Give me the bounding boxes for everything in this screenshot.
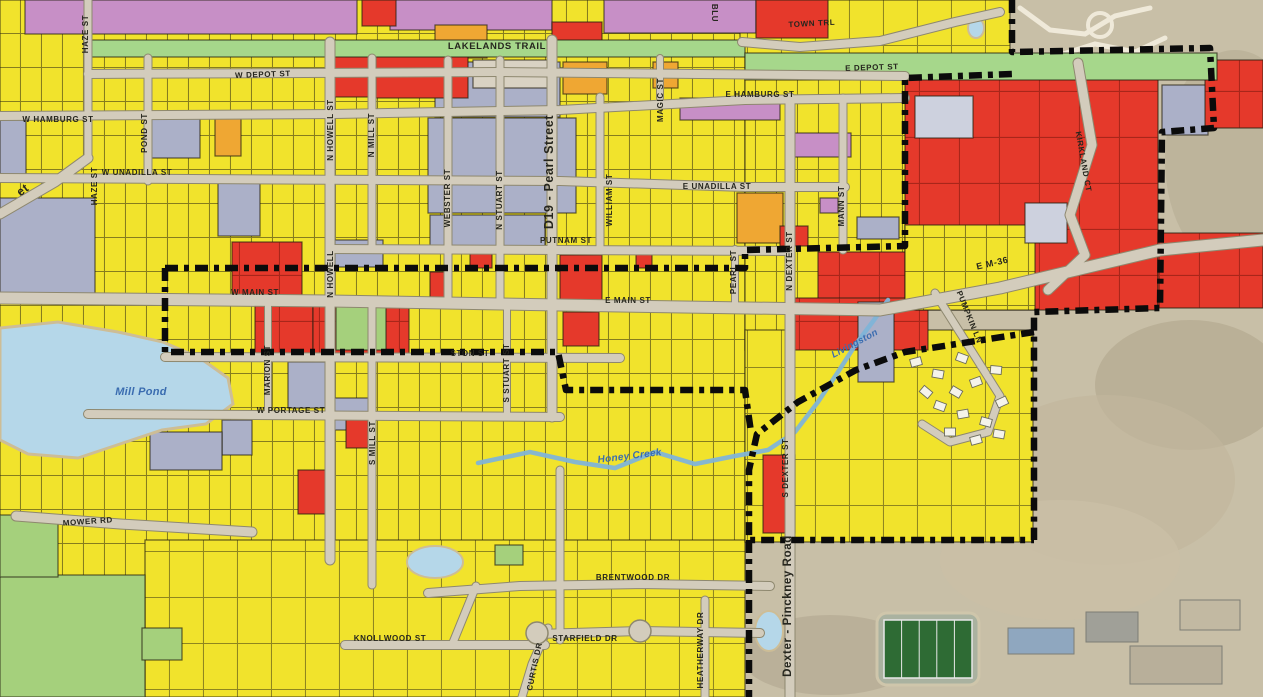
street-label-starfield-dr: STARFIELD DR — [552, 634, 617, 643]
street-label-w-hamburg-st: W HAMBURG ST — [22, 115, 93, 124]
street-label-dexter-pinckney-road: Dexter - Pinckney Road — [782, 535, 794, 677]
street-label-s-mill-st: S MILL ST — [368, 421, 377, 465]
street-label-n-mill-st: N MILL ST — [367, 113, 376, 157]
street-label-n-howell-st: N HOWELL ST — [326, 99, 335, 161]
gray-west-of-pond — [0, 198, 95, 298]
street-label-n-howell: N HOWELL — [326, 250, 335, 297]
street-label-pond-st: POND ST — [140, 113, 149, 153]
street-label-pearl-st: PEARL ST — [729, 250, 738, 294]
cul-de-sac-bulb — [526, 622, 548, 644]
pond — [407, 546, 463, 578]
school-building — [1086, 612, 1138, 642]
parking-lot — [1130, 646, 1222, 684]
putnam-st — [330, 249, 790, 251]
street-label-s-dexter-st: S DEXTER ST — [781, 438, 790, 497]
street-label-e-depot-st: E DEPOT ST — [845, 62, 899, 73]
orange-parcel — [563, 62, 607, 94]
map-canvas: LAKELANDS TRAILTOWN TRLW DEPOT STE DEPOT… — [0, 0, 1263, 697]
street-label-blu: BLU — [710, 4, 719, 22]
red-parcel-parcel-lines — [818, 252, 906, 302]
red-parcel — [346, 418, 368, 448]
street-label-heatherway-dr: HEATHERWAY DR — [696, 612, 705, 689]
green-parcel — [495, 545, 523, 565]
street-label-william-st: WILLIAM ST — [605, 174, 614, 227]
street-label-d19-pearl-street: D19 - Pearl Street — [542, 115, 556, 230]
school-building — [1008, 628, 1074, 654]
red-parcel — [298, 470, 326, 514]
orange-parcel — [737, 193, 783, 243]
house-footprint — [945, 428, 956, 436]
gray-parcel — [150, 432, 222, 470]
street-label-putnam-st: PUTNAM ST — [540, 236, 592, 245]
gray-parcel — [218, 182, 260, 236]
white-flag-parcel — [1025, 203, 1067, 243]
house-footprint — [993, 429, 1005, 439]
purple-parcel — [604, 0, 756, 33]
gray-parcel — [0, 120, 26, 178]
street-label-magic-st: MAGIC ST — [656, 78, 665, 122]
zoning-map: LAKELANDS TRAILTOWN TRLW DEPOT STE DEPOT… — [0, 0, 1263, 697]
street-label-w-main-st: W MAIN ST — [231, 288, 279, 297]
street-label-knollwood-st: KNOLLWOOD ST — [354, 634, 427, 643]
street-label-e-hamburg-st: E HAMBURG ST — [726, 90, 795, 99]
street-label-haze-st: HAZE ST — [90, 167, 99, 205]
street-label-ston-st: STON ST — [451, 349, 490, 358]
street-label-w-unadilla-st: W UNADILLA ST — [102, 168, 173, 177]
gray-parcel — [222, 420, 252, 455]
house-footprint — [990, 366, 1002, 375]
green-left-edge — [0, 515, 58, 577]
street-label-n-stuart-st: N STUART ST — [495, 170, 504, 230]
purple-parcel — [25, 0, 357, 34]
gray-parcel — [288, 362, 330, 408]
cul-de-sac-bulb — [629, 620, 651, 642]
street-label-lakelands-trail: LAKELANDS TRAIL — [448, 41, 546, 52]
street-label-s-stuart-st: S STUART ST — [502, 343, 511, 402]
white-flag-parcel — [915, 96, 973, 138]
house-footprint — [957, 409, 969, 419]
street-label-webster-st: WEBSTER ST — [443, 169, 452, 227]
street-label-marion-st: MARION ST — [263, 345, 272, 395]
street-label-mann-st: MANN ST — [837, 186, 846, 227]
green-bottom-left — [0, 575, 145, 697]
street-label-n-dexter-st: N DEXTER ST — [785, 231, 794, 291]
lakelands-trail-band-west — [88, 40, 745, 57]
gray-parcel — [857, 217, 899, 239]
street-label-haze-st: HAZE ST — [81, 15, 90, 53]
water-label-mill-pond: Mill Pond — [115, 386, 167, 398]
street-label-e-unadilla-st: E UNADILLA ST — [683, 182, 751, 191]
street-label-w-portage-st: W PORTAGE ST — [257, 406, 325, 415]
school-building — [1180, 600, 1240, 630]
red-parcel — [362, 0, 396, 26]
house-footprint — [932, 369, 944, 379]
orange-parcel — [215, 118, 241, 156]
red-parcel — [563, 312, 599, 346]
green-small-bottom — [142, 628, 182, 660]
purple-parcel — [820, 198, 838, 213]
street-label-e-main-st: E MAIN ST — [605, 296, 651, 305]
green-parcel — [336, 303, 386, 350]
football-field — [884, 620, 972, 678]
street-label-brentwood-dr: BRENTWOOD DR — [596, 573, 670, 582]
